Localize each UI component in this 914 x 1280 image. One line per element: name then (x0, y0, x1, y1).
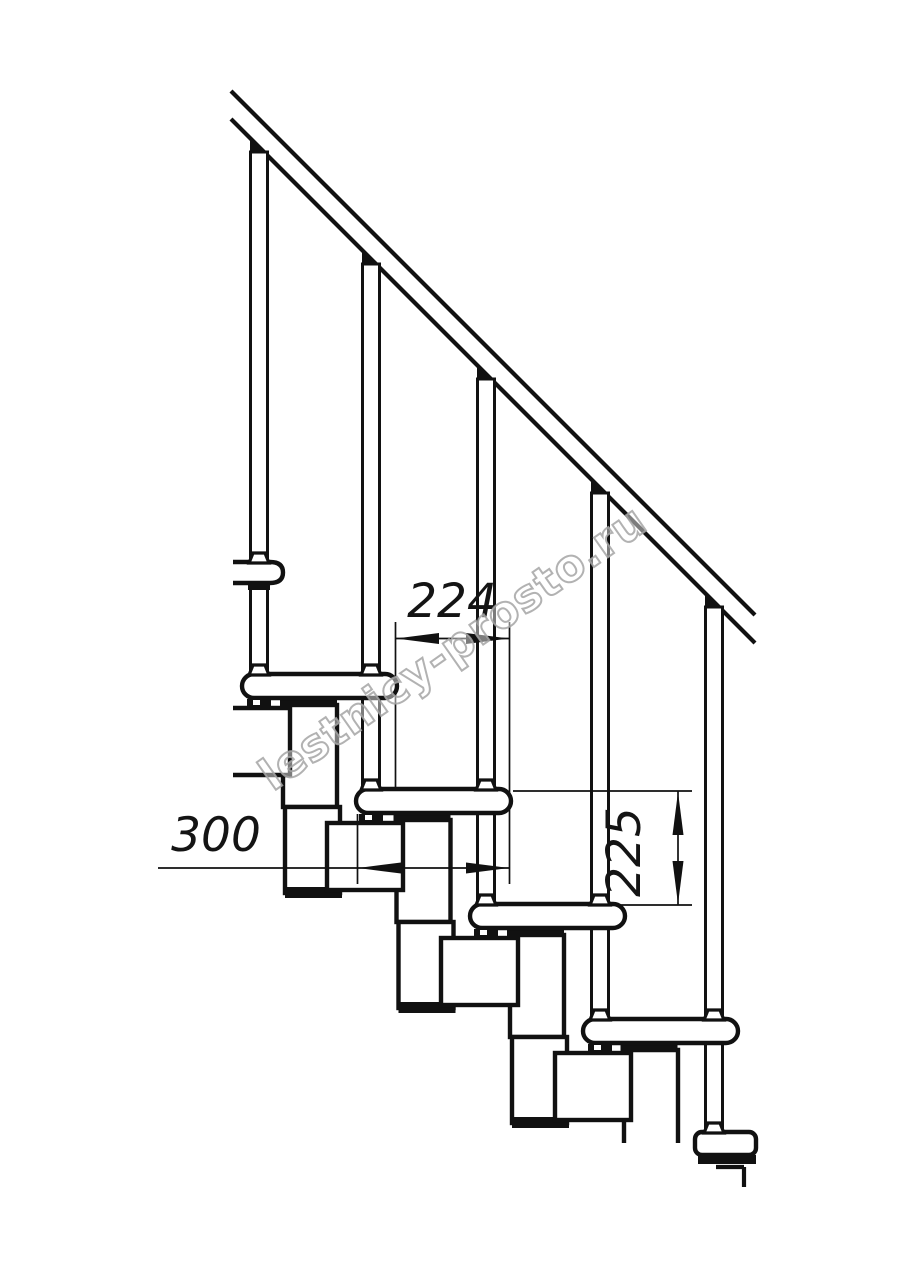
flare-baluster-2-base (361, 780, 381, 790)
module-box-2 (327, 823, 403, 890)
tread-3 (470, 904, 625, 928)
pad-notch (594, 1045, 601, 1050)
baluster-4 (592, 493, 609, 1023)
pad-notch (253, 700, 260, 705)
tread-lower-cut (695, 1132, 756, 1155)
baluster-5 (706, 607, 723, 1136)
flare-baluster-1-upper (249, 553, 269, 563)
flare-baluster-4-base (590, 1010, 610, 1020)
tread-upper-cut (233, 562, 283, 583)
tread-4 (583, 1019, 738, 1043)
staircase-drawing: 224 300 225 (0, 0, 914, 1280)
flare-baluster-5-base (704, 1123, 724, 1133)
tread-1 (242, 674, 397, 698)
baluster-3 (478, 379, 495, 908)
drawing-canvas: 224 300 225 (0, 0, 914, 1280)
arrow-down-icon (673, 861, 684, 904)
bar-under-lower-cut-tread (698, 1155, 756, 1164)
flare-baluster-3-base (476, 895, 496, 905)
pad-under-upper-cut-tread (248, 583, 270, 590)
module-box-3 (441, 938, 518, 1005)
baluster-2 (363, 264, 380, 793)
arrow-up-icon (673, 792, 684, 835)
dimension-label-depth: 300 (171, 808, 261, 863)
flare-baluster-2-upper (361, 665, 381, 675)
flare-baluster-3-upper (476, 780, 496, 790)
module-box-4 (555, 1053, 631, 1120)
dimension-label-going: 224 (407, 574, 497, 629)
flare-baluster-4-upper (590, 895, 610, 905)
bottom-cut-structure (698, 1155, 756, 1187)
tread-2 (356, 789, 511, 813)
module-box-1-cut (233, 708, 290, 775)
arrow-left-icon (396, 633, 439, 644)
flare-baluster-1-base (249, 665, 269, 675)
baluster-1 (251, 152, 268, 678)
pad-notch (365, 815, 372, 820)
pad-notch (480, 930, 487, 935)
dimension-rise-225: 225 (513, 791, 692, 905)
dimension-label-rise: 225 (597, 807, 652, 897)
flare-baluster-5-upper (704, 1010, 724, 1020)
